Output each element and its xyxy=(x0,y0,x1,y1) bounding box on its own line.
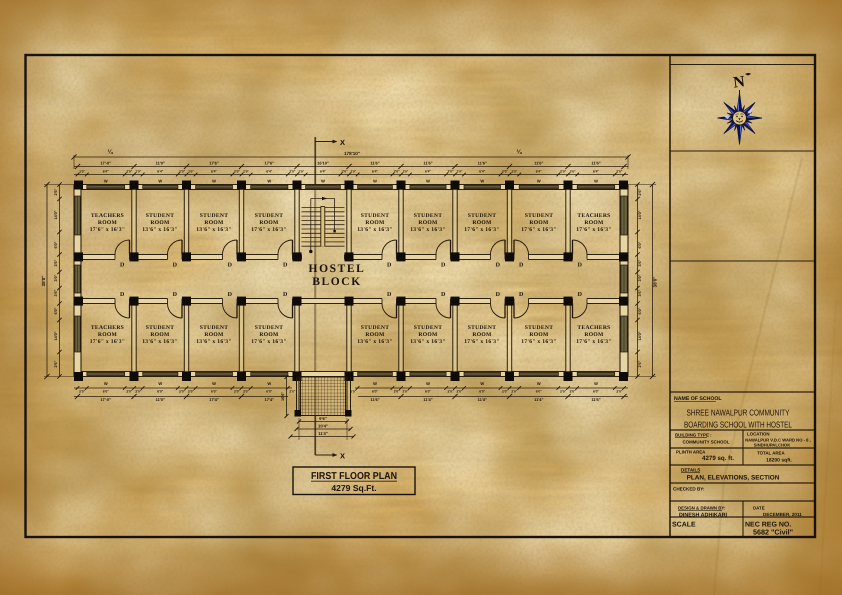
svg-text:17'6": 17'6" xyxy=(209,160,219,165)
svg-text:D: D xyxy=(228,263,233,269)
svg-text:38'0": 38'0" xyxy=(41,276,46,287)
svg-text:2'0": 2'0" xyxy=(511,389,517,393)
svg-text:2'0": 2'0" xyxy=(616,389,622,393)
svg-text:6'0": 6'0" xyxy=(372,389,378,393)
svg-text:6'0": 6'0" xyxy=(638,241,642,248)
svg-text:SHREE NAWALPUR COMMUNITY: SHREE NAWALPUR COMMUNITY xyxy=(687,408,790,418)
svg-text:DESIGN & DRAWN BY:: DESIGN & DRAWN BY: xyxy=(678,506,726,511)
svg-text:11'4": 11'4" xyxy=(318,431,328,436)
svg-text:W: W xyxy=(104,381,108,386)
svg-text:D: D xyxy=(578,292,583,298)
svg-text:11'6": 11'6" xyxy=(370,397,379,402)
svg-text:18200 sqft.: 18200 sqft. xyxy=(766,458,792,464)
svg-text:11'4": 11'4" xyxy=(423,397,432,402)
svg-text:2'0": 2'0" xyxy=(502,389,508,393)
svg-text:2'0": 2'0" xyxy=(560,389,566,393)
svg-text:6'4": 6'4" xyxy=(157,170,163,174)
svg-text:2'0": 2'0" xyxy=(188,170,194,174)
svg-text:3'6": 3'6" xyxy=(54,259,58,266)
svg-text:6'4": 6'4" xyxy=(372,170,378,174)
svg-text:COMMUNITY SCHOOL: COMMUNITY SCHOOL xyxy=(683,440,730,445)
svg-text:D: D xyxy=(496,263,501,269)
svg-text:D: D xyxy=(228,292,233,298)
svg-text:2'0": 2'0" xyxy=(448,389,454,393)
svg-text:DINESH ADHIKARI: DINESH ADHIKARI xyxy=(679,512,728,518)
svg-text:PLINTH AREA: PLINTH AREA xyxy=(676,450,706,455)
svg-text:2'0": 2'0" xyxy=(126,389,132,393)
svg-text:6'0": 6'0" xyxy=(266,389,272,393)
svg-text:6'4": 6'4" xyxy=(479,170,485,174)
svg-text:17'4": 17'4" xyxy=(209,397,219,402)
svg-text:11'6": 11'6" xyxy=(591,160,600,165)
svg-text:W: W xyxy=(426,381,430,386)
svg-text:BUILDING TYPE :: BUILDING TYPE : xyxy=(675,433,712,438)
svg-text:W: W xyxy=(537,381,541,386)
svg-text:W: W xyxy=(480,381,484,386)
svg-text:BLOCK: BLOCK xyxy=(312,276,362,288)
svg-text:W: W xyxy=(158,381,162,386)
svg-text:5682 "Civil": 5682 "Civil" xyxy=(753,528,793,537)
svg-text:2'6": 2'6" xyxy=(54,360,58,367)
svg-text:D: D xyxy=(120,292,125,298)
svg-text:2'0": 2'0" xyxy=(79,389,85,393)
svg-text:16'10": 16'10" xyxy=(317,160,329,165)
svg-text:14'0": 14'0" xyxy=(54,210,58,219)
svg-text:6'0": 6'0" xyxy=(157,389,163,393)
svg-text:2'0": 2'0" xyxy=(188,389,194,393)
svg-text:3'0": 3'0" xyxy=(54,274,58,281)
svg-text:11'4": 11'4" xyxy=(534,397,543,402)
svg-text:W: W xyxy=(480,179,484,184)
svg-text:W: W xyxy=(594,381,598,386)
svg-text:17'6": 17'6" xyxy=(264,160,274,165)
svg-text:2'0": 2'0" xyxy=(350,389,356,393)
svg-text:2'0": 2'0" xyxy=(135,389,141,393)
svg-text:X: X xyxy=(340,138,345,147)
svg-text:2'0": 2'0" xyxy=(179,389,185,393)
svg-text:DATE: DATE xyxy=(753,506,765,511)
svg-text:D: D xyxy=(441,292,446,298)
svg-text:11'4": 11'4" xyxy=(478,397,487,402)
svg-text:2'0": 2'0" xyxy=(570,170,576,174)
svg-text:W: W xyxy=(594,179,598,184)
svg-text:TOTAL AREA: TOTAL AREA xyxy=(757,451,785,456)
svg-text:2'0": 2'0" xyxy=(457,170,463,174)
svg-text:2'0": 2'0" xyxy=(342,170,348,174)
svg-text:11'6": 11'6" xyxy=(478,160,487,165)
svg-text:14'0": 14'0" xyxy=(638,331,642,340)
svg-text:2'0": 2'0" xyxy=(456,389,462,393)
svg-text:D: D xyxy=(578,263,583,269)
svg-text:2'0": 2'0" xyxy=(289,170,295,174)
svg-text:2'6": 2'6" xyxy=(638,188,642,195)
svg-text:W: W xyxy=(373,179,377,184)
svg-text:11'6": 11'6" xyxy=(423,160,432,165)
svg-text:2'0": 2'0" xyxy=(394,170,400,174)
svg-text:6'4": 6'4" xyxy=(266,170,272,174)
svg-text:D: D xyxy=(173,263,178,269)
svg-text:2'0": 2'0" xyxy=(511,170,517,174)
svg-text:14'0": 14'0" xyxy=(638,210,642,219)
svg-text:3'0": 3'0" xyxy=(638,274,642,281)
svg-text:2'0": 2'0" xyxy=(243,389,249,393)
svg-text:11'6": 11'6" xyxy=(534,160,543,165)
svg-text:2'0": 2'0" xyxy=(616,170,622,174)
svg-text:6'0": 6'0" xyxy=(211,389,217,393)
svg-text:D: D xyxy=(441,263,446,269)
svg-text:SINDHUPALCHOK: SINDHUPALCHOK xyxy=(754,443,790,448)
svg-text:6'4": 6'4" xyxy=(211,170,217,174)
svg-text:W: W xyxy=(373,381,377,386)
svg-text:6'4": 6'4" xyxy=(593,170,599,174)
svg-text:BOARDING SCHOOL WITH HOSTEL: BOARDING SCHOOL WITH HOSTEL xyxy=(684,420,792,430)
svg-text:2'0": 2'0" xyxy=(350,170,356,174)
svg-text:6'0": 6'0" xyxy=(593,389,599,393)
svg-text:W: W xyxy=(104,179,108,184)
svg-text:D: D xyxy=(496,292,501,298)
svg-text:17'-0": 17'-0" xyxy=(100,160,111,165)
svg-text:2'0": 2'0" xyxy=(79,170,85,174)
svg-text:38'0": 38'0" xyxy=(652,277,657,288)
svg-text:6'0": 6'0" xyxy=(425,389,431,393)
svg-text:9'6": 9'6" xyxy=(319,416,327,421)
svg-text:2'0": 2'0" xyxy=(298,170,304,174)
svg-text:CHECKED BY:: CHECKED BY: xyxy=(673,487,705,492)
svg-text:2'6": 2'6" xyxy=(638,360,642,367)
svg-text:11'6": 11'6" xyxy=(370,160,379,165)
svg-text:2'0": 2'0" xyxy=(394,389,400,393)
svg-text:6'4": 6'4" xyxy=(320,170,326,174)
svg-text:D: D xyxy=(120,263,125,269)
svg-text:11'0": 11'0" xyxy=(156,397,165,402)
svg-text:10'4": 10'4" xyxy=(318,424,328,429)
svg-text:2'6": 2'6" xyxy=(54,188,58,195)
svg-text:HOSTEL: HOSTEL xyxy=(309,263,366,275)
svg-text:11'0": 11'0" xyxy=(156,160,165,165)
svg-text:2'0": 2'0" xyxy=(502,170,508,174)
svg-text:6'0": 6'0" xyxy=(638,307,642,314)
svg-text:6'0": 6'0" xyxy=(479,389,485,393)
svg-text:2'0": 2'0" xyxy=(403,170,409,174)
svg-text:6'0": 6'0" xyxy=(103,389,109,393)
svg-text:2'0": 2'0" xyxy=(234,170,240,174)
svg-text:6'0": 6'0" xyxy=(54,307,58,314)
svg-text:D: D xyxy=(283,263,288,269)
svg-text:FIRST FLOOR PLAN: FIRST FLOOR PLAN xyxy=(311,471,397,482)
svg-text:W: W xyxy=(212,179,216,184)
svg-text:DECEMBER, 2011: DECEMBER, 2011 xyxy=(763,512,802,517)
svg-text:D: D xyxy=(387,292,392,298)
svg-text:6'4": 6'4" xyxy=(425,170,431,174)
svg-text:2'0": 2'0" xyxy=(126,170,132,174)
svg-text:6'4": 6'4" xyxy=(103,170,109,174)
svg-text:SCALE: SCALE xyxy=(672,522,696,529)
svg-text:2'0": 2'0" xyxy=(234,389,240,393)
svg-text:D: D xyxy=(519,263,524,269)
svg-text:3'6": 3'6" xyxy=(638,289,642,296)
svg-text:4279 Sq.Ft.: 4279 Sq.Ft. xyxy=(331,483,376,493)
svg-text:D: D xyxy=(283,292,288,298)
svg-text:11'6": 11'6" xyxy=(591,397,600,402)
svg-text:DETAILS: DETAILS xyxy=(681,468,700,473)
svg-text:W: W xyxy=(212,381,216,386)
svg-text:2'0": 2'0" xyxy=(570,389,576,393)
svg-text:W: W xyxy=(426,179,430,184)
svg-text:W: W xyxy=(537,179,541,184)
svg-text:2'0": 2'0" xyxy=(136,170,142,174)
svg-text:PLAN, ELEVATIONS, SECTION: PLAN, ELEVATIONS, SECTION xyxy=(687,475,780,482)
svg-text:X: X xyxy=(340,452,345,461)
svg-text:W: W xyxy=(158,179,162,184)
svg-text:4279 sq. ft.: 4279 sq. ft. xyxy=(702,455,734,462)
svg-text:178'10": 178'10" xyxy=(344,151,360,156)
svg-text:2'0": 2'0" xyxy=(243,170,249,174)
svg-text:W: W xyxy=(267,381,271,386)
svg-text:17'-0": 17'-0" xyxy=(100,397,111,402)
svg-text:W: W xyxy=(321,179,325,184)
svg-text:6'0": 6'0" xyxy=(54,241,58,248)
svg-text:14'0": 14'0" xyxy=(54,331,58,340)
svg-text:6'0": 6'0" xyxy=(536,389,542,393)
svg-text:2'0": 2'0" xyxy=(402,389,408,393)
svg-text:16'6": 16'6" xyxy=(281,392,285,401)
svg-text:D: D xyxy=(387,263,392,269)
svg-text:2'0": 2'0" xyxy=(289,389,295,393)
svg-text:D: D xyxy=(173,292,178,298)
svg-text:6'4": 6'4" xyxy=(536,170,542,174)
svg-text:LOCATION: LOCATION xyxy=(747,432,770,437)
svg-text:2'0": 2'0" xyxy=(448,170,454,174)
svg-text:2'0": 2'0" xyxy=(179,170,185,174)
svg-text:3'6": 3'6" xyxy=(638,259,642,266)
svg-text:17'4": 17'4" xyxy=(264,397,274,402)
svg-text:2'0": 2'0" xyxy=(560,170,566,174)
svg-text:W: W xyxy=(267,179,271,184)
svg-text:D: D xyxy=(519,292,524,298)
